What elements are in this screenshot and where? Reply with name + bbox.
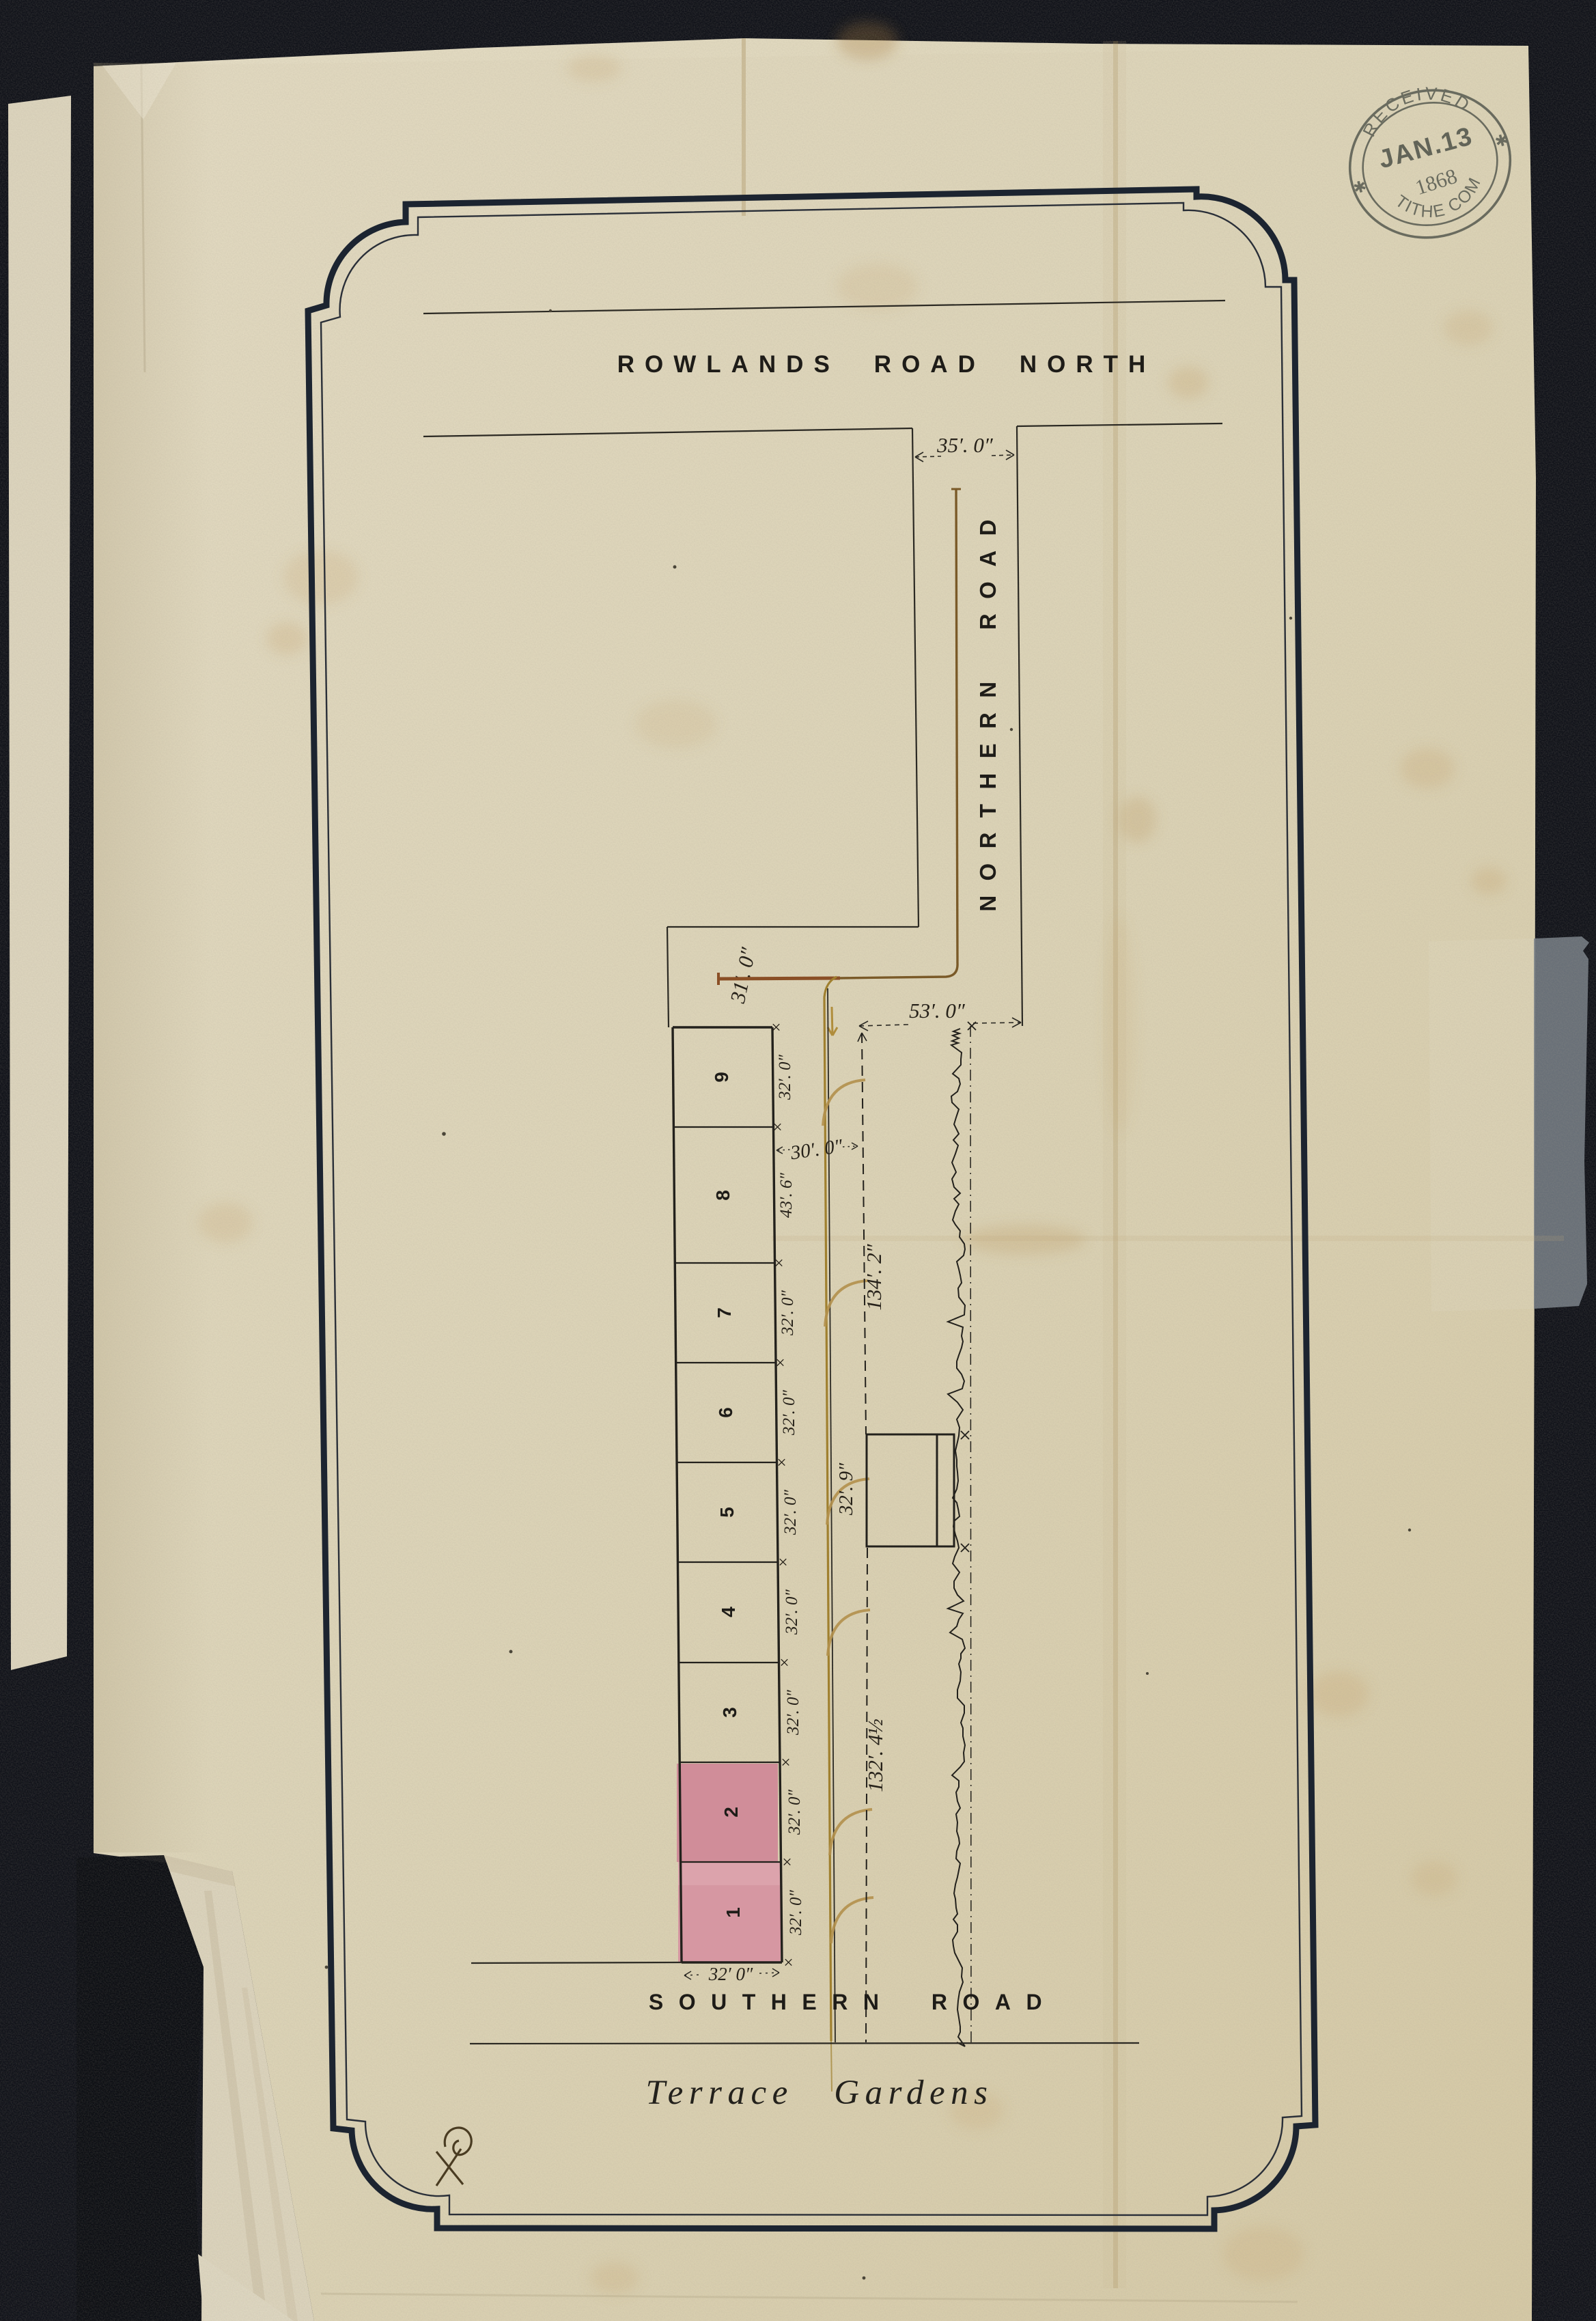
svg-text:32′. 0″: 32′. 0″ bbox=[785, 1789, 804, 1835]
svg-text:32′. 9″: 32′. 9″ bbox=[835, 1462, 857, 1516]
svg-text:×: × bbox=[768, 1022, 786, 1033]
svg-text:43′. 6″: 43′. 6″ bbox=[777, 1172, 796, 1217]
svg-text:ROWLANDS ROAD NORTH: ROWLANDS ROAD NORTH bbox=[617, 351, 1156, 378]
svg-text:×: × bbox=[772, 1357, 790, 1369]
svg-text:2: 2 bbox=[720, 1807, 742, 1818]
svg-text:7: 7 bbox=[714, 1307, 735, 1318]
svg-text:Terrace Gardens: Terrace Gardens bbox=[645, 2074, 993, 2112]
svg-text:134′. 2″: 134′. 2″ bbox=[862, 1243, 886, 1310]
svg-text:5: 5 bbox=[716, 1507, 738, 1518]
svg-text:9: 9 bbox=[711, 1072, 732, 1083]
svg-text:SOUTHERN ROAD: SOUTHERN ROAD bbox=[649, 1990, 1057, 2014]
svg-text:32′. 0″: 32′. 0″ bbox=[784, 1689, 802, 1735]
svg-text:×: × bbox=[777, 1757, 796, 1768]
svg-text:32′. 0″: 32′. 0″ bbox=[780, 1389, 798, 1435]
svg-text:32′. 0″: 32′. 0″ bbox=[776, 1054, 794, 1100]
svg-text:×: × bbox=[774, 1557, 793, 1568]
svg-text:32′. 0″: 32′. 0″ bbox=[783, 1589, 801, 1635]
svg-text:6: 6 bbox=[715, 1407, 736, 1418]
svg-text:8: 8 bbox=[712, 1190, 733, 1201]
svg-text:32′. 0″: 32′. 0″ bbox=[779, 1290, 797, 1335]
svg-text:32′ 0″: 32′ 0″ bbox=[708, 1964, 753, 1984]
svg-text:×: × bbox=[776, 1657, 794, 1669]
svg-text:32′. 0″: 32′. 0″ bbox=[781, 1489, 800, 1535]
svg-text:×: × bbox=[770, 1257, 789, 1269]
svg-text:NORTHERN ROAD: NORTHERN ROAD bbox=[975, 505, 1000, 911]
svg-text:53′. 0″: 53′. 0″ bbox=[909, 999, 966, 1023]
svg-text:×: × bbox=[779, 1857, 797, 1868]
svg-text:×: × bbox=[773, 1457, 792, 1469]
svg-text:35′. 0″: 35′. 0″ bbox=[936, 433, 994, 457]
svg-text:3: 3 bbox=[719, 1707, 740, 1718]
svg-text:4: 4 bbox=[718, 1607, 739, 1617]
svg-text:×: × bbox=[780, 1957, 798, 1969]
svg-text:32′. 0″: 32′. 0″ bbox=[787, 1889, 805, 1935]
svg-text:132′. 4½: 132′. 4½ bbox=[863, 1719, 887, 1792]
svg-text:×: × bbox=[769, 1122, 787, 1133]
svg-text:1: 1 bbox=[723, 1907, 744, 1918]
